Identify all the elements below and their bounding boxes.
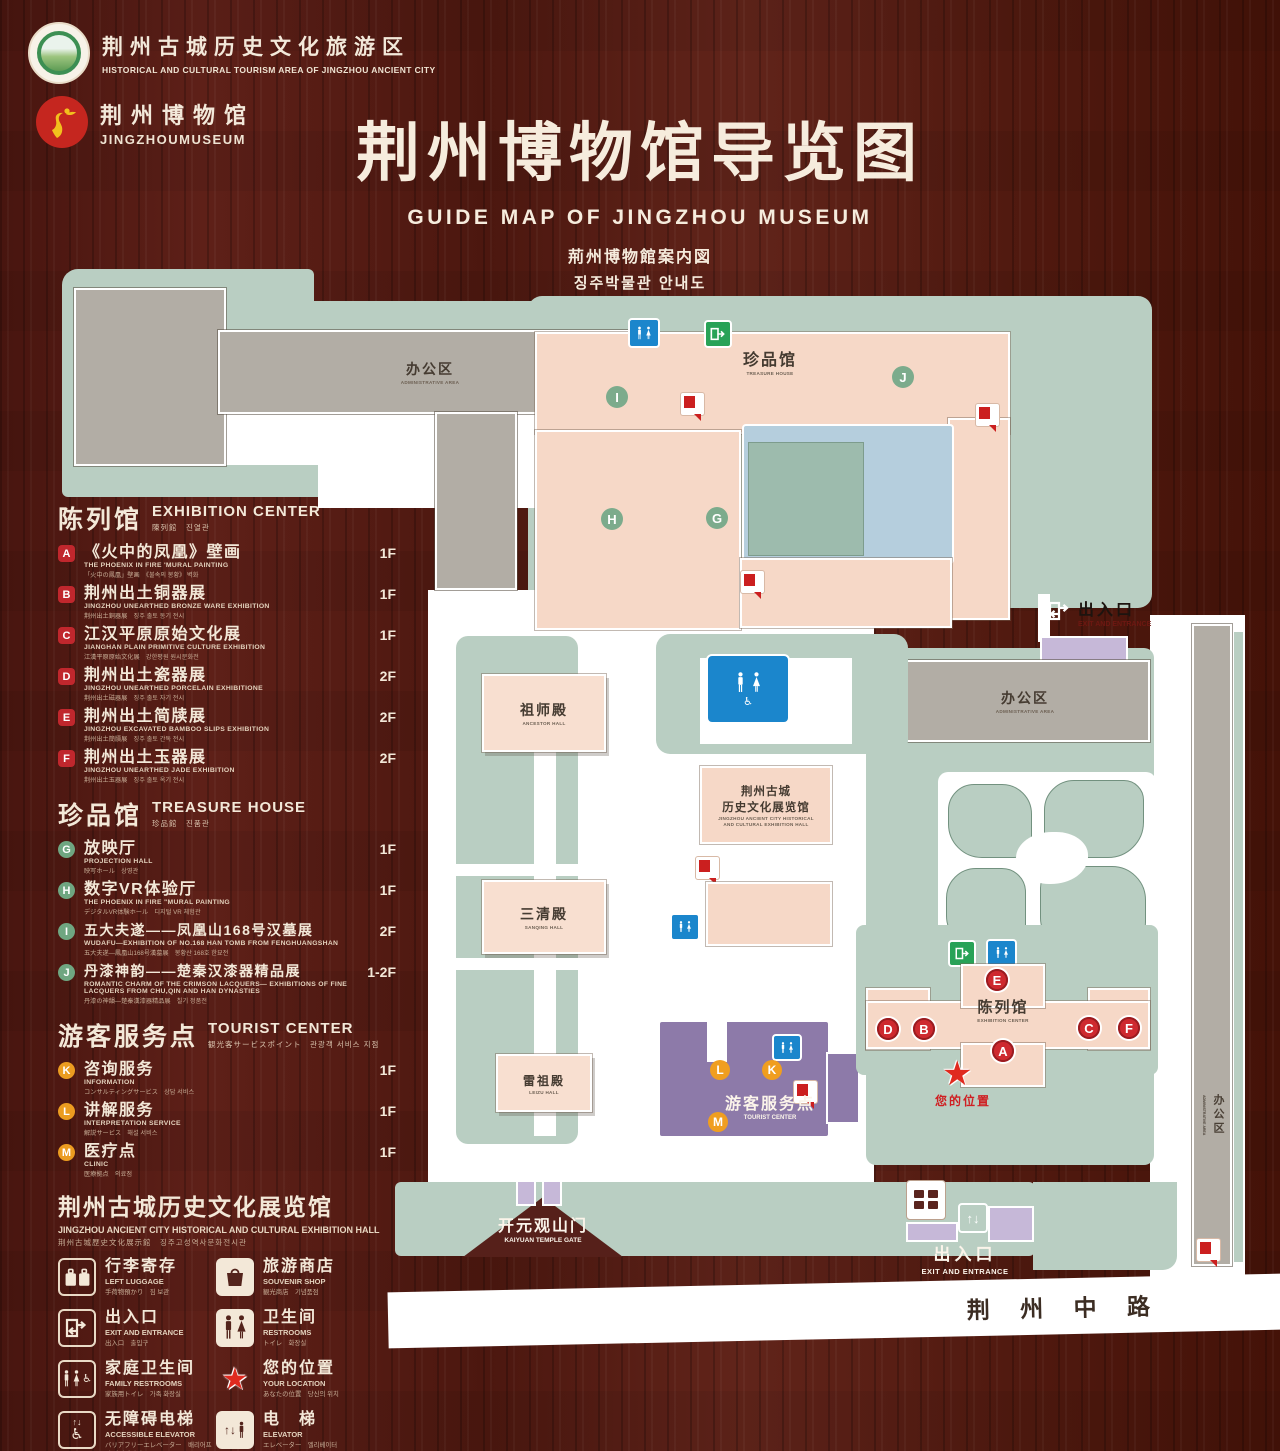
exit-ne-icon — [1048, 600, 1072, 622]
map-marker-c: C — [1078, 1017, 1100, 1039]
left-luggage-map-icon — [906, 1180, 946, 1220]
gate-block-se-1 — [906, 1222, 958, 1242]
elevator-icon-treasure-3 — [740, 570, 765, 594]
building-treasure-house-east — [948, 418, 1010, 620]
building-leizu-hall: 雷祖殿LEIZU HALL — [496, 1054, 592, 1112]
map-marker-a: A — [992, 1040, 1014, 1062]
building-sanqing-hall: 三清殿SANQING HALL — [482, 880, 606, 954]
office-strip-label: 办公区ADMINISTRATIVE AREA — [1192, 624, 1232, 1266]
exit-ne-label: 出入口 EXIT AND ENTRANCE — [1078, 596, 1188, 628]
kaiyuan-gate-label: 开元观山门 KAIYUAN TEMPLE GATE — [455, 1212, 631, 1244]
exhibition-center-label: 陈列馆 EXHIBITION CENTER — [940, 996, 1066, 1023]
map-marker-d: D — [877, 1018, 899, 1040]
map-marker-b: B — [913, 1018, 935, 1040]
restroom-sign-exhibition — [986, 939, 1017, 967]
map-marker-g: G — [706, 507, 728, 529]
gate-block-south-1 — [516, 1180, 536, 1206]
elevator-icon-treasure-2 — [975, 403, 1000, 427]
exit-sign-treasure — [704, 320, 732, 348]
building-ancient-city-hall: 荆州古城 历史文化展览馆 JINGZHOU ANCIENT CITY HISTO… — [700, 766, 832, 844]
map-marker-h: H — [601, 508, 623, 530]
building-ancient-city-hall-south — [706, 882, 832, 946]
gate-block-south-2 — [542, 1180, 562, 1206]
gate-block-se-2 — [988, 1206, 1034, 1242]
map-marker-e: E — [986, 969, 1008, 991]
elevator-icon-treasure-1 — [680, 392, 705, 416]
halls-gap-2 — [456, 958, 578, 970]
halls-gap-1 — [456, 864, 578, 876]
restroom-sign-small-1 — [670, 913, 700, 941]
restroom-sign-tourist — [772, 1034, 802, 1061]
map-marker-i: I — [606, 386, 628, 408]
grounds-east-sliver — [1234, 632, 1243, 1262]
elevator-arrows-icon: ↑↓ — [958, 1203, 988, 1233]
map-marker-j: J — [892, 366, 914, 388]
building-office-nw-arm — [435, 412, 517, 590]
restroom-sign-treasure — [628, 318, 660, 348]
exit-se-label: 出入口 EXIT AND ENTRANCE — [900, 1240, 1030, 1276]
map-marker-f: F — [1118, 1017, 1140, 1039]
elevator-icon-central — [695, 856, 720, 880]
your-location-label: 您的位置 — [908, 1092, 1018, 1109]
exit-sign-exhibition — [948, 940, 976, 967]
road-jingzhou-middle: 荆 州 中 路 — [388, 1274, 1280, 1349]
building-office-east: 办公区ADMINISTRATIVE AREA — [900, 660, 1150, 742]
tourist-center-notch — [707, 1018, 727, 1062]
map-marker-k: K — [762, 1060, 782, 1080]
map-marker-l: L — [710, 1060, 730, 1080]
treasure-house-label: 珍品馆 TREASURE HOUSE — [700, 346, 840, 376]
tourist-center-label: 游客服务点 TOURIST CENTER — [690, 1090, 850, 1121]
building-ancestor-hall: 祖师殿ANCESTOR HALL — [482, 674, 606, 752]
elevator-icon-strip — [1196, 1238, 1221, 1262]
grounds-south-east — [1033, 1182, 1177, 1270]
treasure-pond-court — [748, 442, 864, 556]
building-office-nw-wing — [74, 288, 226, 466]
site-map: 办公区ADMINISTRATIVE AREA 珍品馆 TREASURE HOUS… — [0, 0, 1280, 1451]
restroom-sign-central: ♿ — [706, 654, 790, 724]
your-location-star: ★ — [942, 1054, 972, 1094]
guide-map-poster: 荆州古城历史文化旅游区 HISTORICAL AND CULTURAL TOUR… — [0, 0, 1280, 1451]
building-treasure-house-west — [535, 430, 741, 630]
building-treasure-house-south — [740, 558, 952, 628]
